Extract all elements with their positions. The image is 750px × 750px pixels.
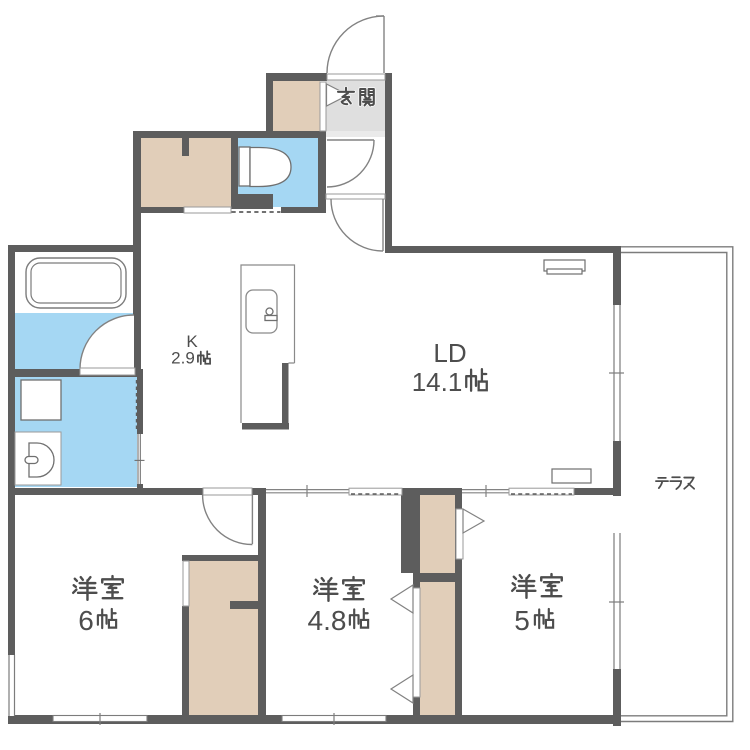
svg-text:LD: LD — [433, 338, 466, 368]
svg-text:2.9: 2.9 — [171, 349, 195, 368]
svg-text:6: 6 — [78, 605, 94, 636]
svg-text:14.1: 14.1 — [412, 367, 463, 397]
svg-text:5: 5 — [514, 605, 530, 636]
svg-text:4.8: 4.8 — [308, 605, 347, 636]
